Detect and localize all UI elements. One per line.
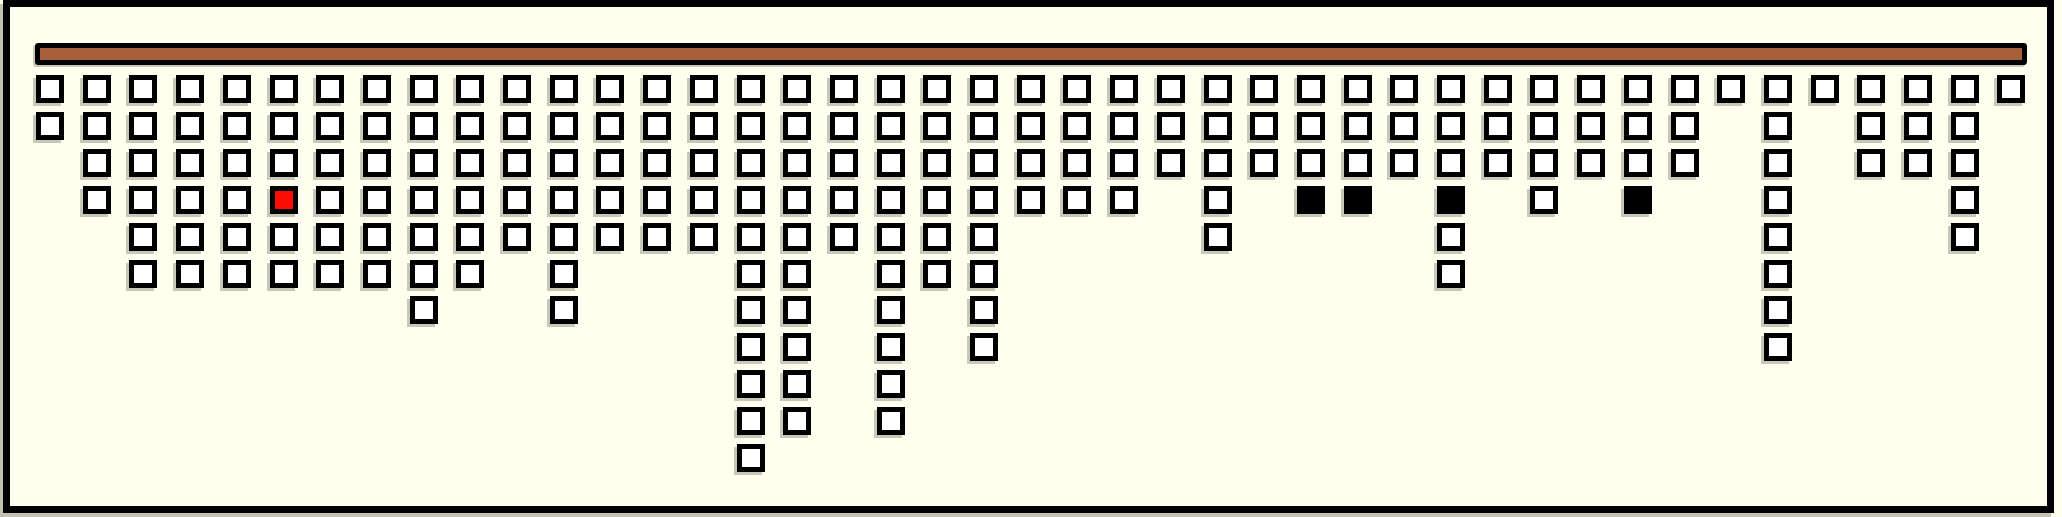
cell-col7-row6 — [316, 260, 344, 288]
cell-col35-row3 — [1624, 149, 1652, 177]
cell-col38-row7 — [1764, 296, 1792, 324]
cell-col17-row10 — [783, 407, 811, 435]
cell-col26-row3 — [1204, 149, 1232, 177]
cell-col10-row3 — [456, 149, 484, 177]
cell-col21-row5 — [970, 223, 998, 251]
cell-col30-row2 — [1390, 112, 1418, 140]
wood-bar — [35, 43, 2027, 65]
cell-col31-row3 — [1437, 149, 1465, 177]
cell-col9-row1 — [410, 75, 438, 103]
cell-col1-row1 — [36, 75, 64, 103]
cell-col3-row5 — [129, 223, 157, 251]
cell-col16-row5 — [737, 223, 765, 251]
cell-col34-row3 — [1577, 149, 1605, 177]
cell-col28-row1 — [1297, 75, 1325, 103]
cell-col24-row3 — [1110, 149, 1138, 177]
cell-col32-row1 — [1484, 75, 1512, 103]
cell-col13-row2 — [596, 112, 624, 140]
cell-col17-row4 — [783, 186, 811, 214]
cell-col24-row4 — [1110, 186, 1138, 214]
cell-col38-row4 — [1764, 186, 1792, 214]
cell-col41-row3 — [1904, 149, 1932, 177]
cell-col28-row2 — [1297, 112, 1325, 140]
cell-col4-row4 — [176, 186, 204, 214]
cell-col17-row3 — [783, 149, 811, 177]
cell-col20-row6 — [923, 260, 951, 288]
cell-col18-row3 — [830, 149, 858, 177]
cell-col14-row5 — [643, 223, 671, 251]
cell-col8-row5 — [363, 223, 391, 251]
cell-col14-row4 — [643, 186, 671, 214]
cell-col23-row4 — [1063, 186, 1091, 214]
cell-col20-row3 — [923, 149, 951, 177]
cell-col32-row2 — [1484, 112, 1512, 140]
cell-col25-row2 — [1157, 112, 1185, 140]
cell-col8-row6 — [363, 260, 391, 288]
cell-col7-row1 — [316, 75, 344, 103]
cell-col31-row1 — [1437, 75, 1465, 103]
cell-col20-row4 — [923, 186, 951, 214]
cell-col12-row6 — [550, 260, 578, 288]
cell-col22-row3 — [1017, 149, 1045, 177]
cell-col1-row2 — [36, 112, 64, 140]
cell-col20-row2 — [923, 112, 951, 140]
cell-col16-row6 — [737, 260, 765, 288]
cell-col15-row1 — [690, 75, 718, 103]
cell-col4-row2 — [176, 112, 204, 140]
cell-col9-row7 — [410, 296, 438, 324]
cell-col42-row2 — [1951, 112, 1979, 140]
cell-col19-row4 — [877, 186, 905, 214]
cell-col2-row4 — [83, 186, 111, 214]
cell-col21-row8 — [970, 333, 998, 361]
cell-col33-row2 — [1530, 112, 1558, 140]
cell-col8-row3 — [363, 149, 391, 177]
cell-col38-row1 — [1764, 75, 1792, 103]
cell-col26-row4 — [1204, 186, 1232, 214]
cell-col8-row4 — [363, 186, 391, 214]
cell-col6-row3 — [270, 149, 298, 177]
cell-col9-row4 — [410, 186, 438, 214]
cell-col38-row2 — [1764, 112, 1792, 140]
cell-col16-row1 — [737, 75, 765, 103]
cell-col29-row2 — [1344, 112, 1372, 140]
cell-col10-row6 — [456, 260, 484, 288]
cell-col21-row2 — [970, 112, 998, 140]
cell-col17-row5 — [783, 223, 811, 251]
cell-col21-row4 — [970, 186, 998, 214]
black-cell-col31-row4 — [1437, 186, 1465, 214]
cell-col17-row1 — [783, 75, 811, 103]
simulation-screenshot: { "canvas": { "width": 2062, "height": 5… — [0, 0, 2062, 517]
cell-col30-row1 — [1390, 75, 1418, 103]
cell-col27-row2 — [1250, 112, 1278, 140]
cell-col25-row3 — [1157, 149, 1185, 177]
cell-col5-row2 — [223, 112, 251, 140]
cell-col16-row7 — [737, 296, 765, 324]
cell-col40-row1 — [1857, 75, 1885, 103]
cell-col40-row2 — [1857, 112, 1885, 140]
cell-col37-row1 — [1717, 75, 1745, 103]
cell-col19-row8 — [877, 333, 905, 361]
cell-col16-row2 — [737, 112, 765, 140]
cell-col8-row1 — [363, 75, 391, 103]
cell-col12-row7 — [550, 296, 578, 324]
cell-col3-row2 — [129, 112, 157, 140]
cell-col42-row4 — [1951, 186, 1979, 214]
cell-col31-row5 — [1437, 223, 1465, 251]
cell-col21-row6 — [970, 260, 998, 288]
cell-col4-row5 — [176, 223, 204, 251]
cell-col9-row6 — [410, 260, 438, 288]
cell-col11-row2 — [503, 112, 531, 140]
cell-col13-row5 — [596, 223, 624, 251]
cell-col10-row5 — [456, 223, 484, 251]
cell-col21-row7 — [970, 296, 998, 324]
cell-col39-row1 — [1811, 75, 1839, 103]
cell-col21-row1 — [970, 75, 998, 103]
cell-col26-row2 — [1204, 112, 1232, 140]
cell-col15-row3 — [690, 149, 718, 177]
cell-col19-row7 — [877, 296, 905, 324]
cell-col16-row11 — [737, 444, 765, 472]
black-cell-col28-row4 — [1297, 186, 1325, 214]
red-cell-col6-row4 — [270, 186, 298, 214]
cell-col38-row5 — [1764, 223, 1792, 251]
cell-col23-row1 — [1063, 75, 1091, 103]
cell-col8-row2 — [363, 112, 391, 140]
cell-col34-row2 — [1577, 112, 1605, 140]
cell-col38-row8 — [1764, 333, 1792, 361]
cell-col9-row3 — [410, 149, 438, 177]
cell-col18-row1 — [830, 75, 858, 103]
black-cell-col29-row4 — [1344, 186, 1372, 214]
cell-col33-row4 — [1530, 186, 1558, 214]
cell-col2-row1 — [83, 75, 111, 103]
cell-col12-row1 — [550, 75, 578, 103]
cell-col28-row3 — [1297, 149, 1325, 177]
cell-col19-row9 — [877, 370, 905, 398]
cell-col5-row4 — [223, 186, 251, 214]
cell-col3-row1 — [129, 75, 157, 103]
cell-col3-row3 — [129, 149, 157, 177]
cell-col16-row4 — [737, 186, 765, 214]
cell-col19-row10 — [877, 407, 905, 435]
black-cell-col35-row4 — [1624, 186, 1652, 214]
cell-col22-row4 — [1017, 186, 1045, 214]
cell-col33-row1 — [1530, 75, 1558, 103]
cell-col32-row3 — [1484, 149, 1512, 177]
cell-col7-row3 — [316, 149, 344, 177]
cell-col14-row3 — [643, 149, 671, 177]
cell-col7-row5 — [316, 223, 344, 251]
cell-col5-row1 — [223, 75, 251, 103]
cell-col15-row4 — [690, 186, 718, 214]
cell-col7-row2 — [316, 112, 344, 140]
cell-col4-row3 — [176, 149, 204, 177]
cell-col27-row3 — [1250, 149, 1278, 177]
cell-col22-row1 — [1017, 75, 1045, 103]
cell-col29-row1 — [1344, 75, 1372, 103]
cell-col16-row10 — [737, 407, 765, 435]
cell-col7-row4 — [316, 186, 344, 214]
cell-col9-row5 — [410, 223, 438, 251]
cell-col38-row3 — [1764, 149, 1792, 177]
cell-col35-row1 — [1624, 75, 1652, 103]
cell-col16-row3 — [737, 149, 765, 177]
cell-col20-row1 — [923, 75, 951, 103]
cell-col19-row1 — [877, 75, 905, 103]
cell-col43-row1 — [1997, 75, 2025, 103]
cell-col18-row5 — [830, 223, 858, 251]
cell-col36-row1 — [1671, 75, 1699, 103]
cell-col42-row1 — [1951, 75, 1979, 103]
cell-col2-row2 — [83, 112, 111, 140]
cell-col36-row3 — [1671, 149, 1699, 177]
cell-col10-row2 — [456, 112, 484, 140]
cell-col4-row1 — [176, 75, 204, 103]
cell-col35-row2 — [1624, 112, 1652, 140]
cell-col34-row1 — [1577, 75, 1605, 103]
cell-col4-row6 — [176, 260, 204, 288]
cell-col31-row2 — [1437, 112, 1465, 140]
cell-col22-row2 — [1017, 112, 1045, 140]
cell-col19-row5 — [877, 223, 905, 251]
cell-col18-row2 — [830, 112, 858, 140]
cell-col2-row3 — [83, 149, 111, 177]
cell-col15-row5 — [690, 223, 718, 251]
cell-col12-row4 — [550, 186, 578, 214]
cell-col13-row1 — [596, 75, 624, 103]
cell-col13-row3 — [596, 149, 624, 177]
cell-col9-row2 — [410, 112, 438, 140]
cell-col41-row2 — [1904, 112, 1932, 140]
cell-col6-row6 — [270, 260, 298, 288]
cell-col16-row9 — [737, 370, 765, 398]
cell-col14-row1 — [643, 75, 671, 103]
cell-col36-row2 — [1671, 112, 1699, 140]
cell-col10-row1 — [456, 75, 484, 103]
cell-col17-row6 — [783, 260, 811, 288]
cell-col6-row5 — [270, 223, 298, 251]
cell-col23-row2 — [1063, 112, 1091, 140]
cell-col31-row6 — [1437, 260, 1465, 288]
cell-col11-row5 — [503, 223, 531, 251]
cell-col40-row3 — [1857, 149, 1885, 177]
cell-col24-row1 — [1110, 75, 1138, 103]
cell-col12-row3 — [550, 149, 578, 177]
cell-col27-row1 — [1250, 75, 1278, 103]
cell-col11-row1 — [503, 75, 531, 103]
cell-col20-row5 — [923, 223, 951, 251]
cell-col5-row6 — [223, 260, 251, 288]
cell-col41-row1 — [1904, 75, 1932, 103]
cell-col17-row7 — [783, 296, 811, 324]
cell-col26-row1 — [1204, 75, 1232, 103]
cell-col13-row4 — [596, 186, 624, 214]
cell-col15-row2 — [690, 112, 718, 140]
cell-col6-row2 — [270, 112, 298, 140]
cell-col12-row5 — [550, 223, 578, 251]
cell-col29-row3 — [1344, 149, 1372, 177]
cell-col24-row2 — [1110, 112, 1138, 140]
cell-col18-row4 — [830, 186, 858, 214]
cell-col17-row9 — [783, 370, 811, 398]
cell-col12-row2 — [550, 112, 578, 140]
cell-col5-row5 — [223, 223, 251, 251]
cell-col11-row4 — [503, 186, 531, 214]
cell-col10-row4 — [456, 186, 484, 214]
cell-col23-row3 — [1063, 149, 1091, 177]
cell-col26-row5 — [1204, 223, 1232, 251]
cell-col3-row4 — [129, 186, 157, 214]
cell-col42-row3 — [1951, 149, 1979, 177]
cell-col16-row8 — [737, 333, 765, 361]
model-canvas — [0, 0, 2062, 517]
cell-col25-row1 — [1157, 75, 1185, 103]
cell-col38-row6 — [1764, 260, 1792, 288]
cell-col30-row3 — [1390, 149, 1418, 177]
cell-col6-row1 — [270, 75, 298, 103]
cell-col33-row3 — [1530, 149, 1558, 177]
cell-col14-row2 — [643, 112, 671, 140]
cell-col42-row5 — [1951, 223, 1979, 251]
cell-col11-row3 — [503, 149, 531, 177]
cell-col19-row6 — [877, 260, 905, 288]
cell-col21-row3 — [970, 149, 998, 177]
cell-col5-row3 — [223, 149, 251, 177]
cell-col3-row6 — [129, 260, 157, 288]
cell-col17-row2 — [783, 112, 811, 140]
cell-col17-row8 — [783, 333, 811, 361]
cell-col19-row2 — [877, 112, 905, 140]
cell-col19-row3 — [877, 149, 905, 177]
